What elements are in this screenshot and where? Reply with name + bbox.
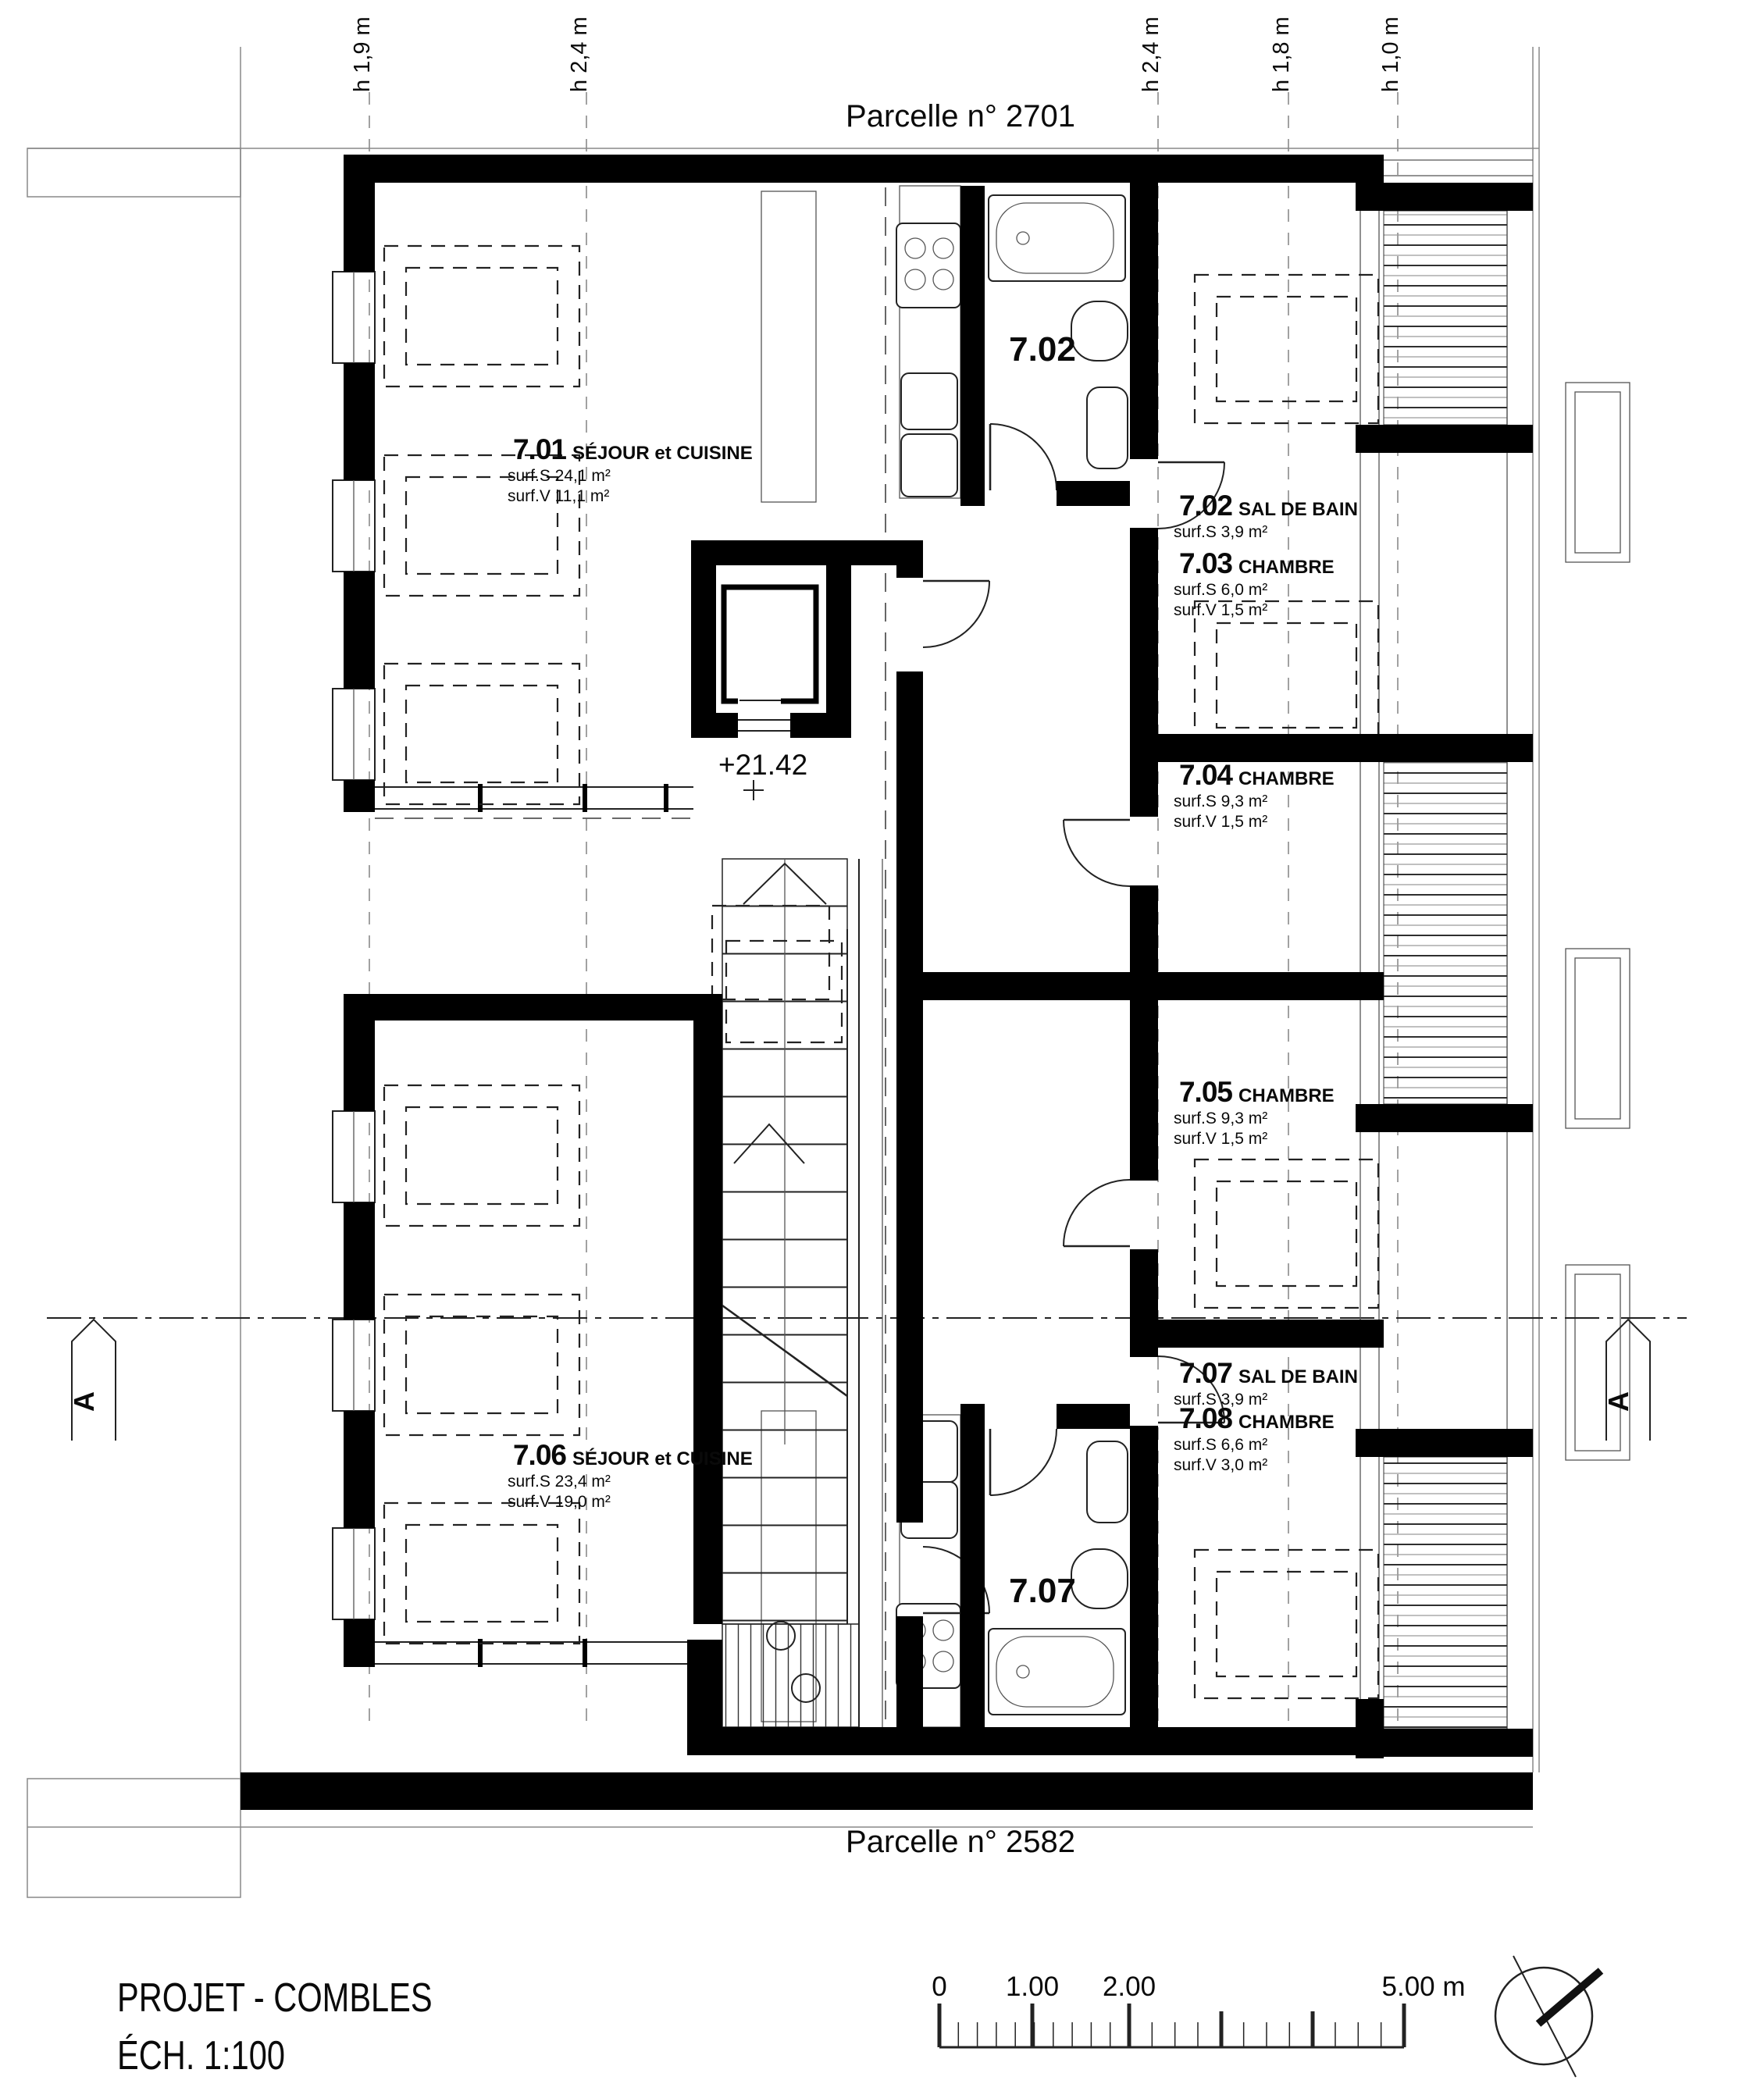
height-label: h 1,9 m <box>350 16 375 92</box>
elevator <box>724 587 816 731</box>
washbasin <box>1087 1441 1128 1523</box>
room-label-number: 7.06 <box>513 1439 566 1471</box>
window-band-top <box>375 784 693 818</box>
dormer-outlines <box>1566 383 1630 1460</box>
toilet <box>1071 1549 1128 1608</box>
room-label-surface: surf.S 9,3 m² <box>1174 1110 1267 1127</box>
elevator-car <box>724 587 816 701</box>
kitchen-sink <box>901 434 957 497</box>
section-marker-left: A <box>68 1320 116 1441</box>
room-label-name: CHAMBRE <box>1238 1412 1335 1433</box>
scale-bar: 0 1.00 2.00 5.00 m <box>932 1972 1465 2047</box>
room-label-surface: surf.V 11,1 m² <box>508 487 609 505</box>
room-label-name: SAL DE BAIN <box>1238 1366 1358 1387</box>
height-label: h 1,8 m <box>1269 16 1294 92</box>
room-label-number: 7.01 <box>513 433 566 465</box>
room-label-surface: surf.S 24,1 m² <box>508 467 611 485</box>
scale-label-0: 0 <box>932 1972 946 2002</box>
room-label-number: 7.08 <box>1179 1402 1232 1434</box>
height-label: h 2,4 m <box>1139 16 1164 92</box>
kitchen-top <box>761 186 960 502</box>
toilet <box>1071 301 1128 361</box>
room-label-name: CHAMBRE <box>1238 768 1335 789</box>
room-label-name: CHAMBRE <box>1238 557 1335 578</box>
room-label-surface: surf.V 1,5 m² <box>1174 601 1267 619</box>
survey-cross <box>743 780 764 800</box>
stair-landing-hatch <box>722 1624 859 1727</box>
parcel-label-bottom: Parcelle n° 2582 <box>846 1825 1075 1859</box>
room-label-surface: surf.V 1,5 m² <box>1174 813 1267 831</box>
section-letter: A <box>1602 1391 1634 1412</box>
stove <box>896 223 960 308</box>
height-label: h 1,0 m <box>1378 16 1403 92</box>
room-label-number: 7.03 <box>1179 547 1232 579</box>
staircase <box>712 780 882 1727</box>
room-label-name: CHAMBRE <box>1238 1085 1335 1106</box>
room-label-number: 7.04 <box>1179 759 1233 791</box>
drawing-title: PROJET - COMBLES <box>117 1975 433 2021</box>
kitchen-sink <box>901 373 957 429</box>
room-label-number: 7.02 <box>1179 490 1232 522</box>
room-label-name: SAL DE BAIN <box>1238 499 1358 520</box>
section-marker-right: A <box>1602 1320 1650 1441</box>
walls <box>241 155 1533 1810</box>
room-label-name: SÉJOUR et CUISINE <box>572 1448 753 1469</box>
room-label-name: SÉJOUR et CUISINE <box>572 442 753 464</box>
bathroom-tag-top: 7.02 <box>1009 330 1076 369</box>
room-label-number: 7.05 <box>1179 1076 1232 1108</box>
scale-label-1: 1.00 <box>1006 1972 1059 2002</box>
neighbor-building-bottom <box>27 1779 241 1897</box>
floor-plan-drawing: A A 0 1.00 2.00 5.00 m Parcelle n° 2701 … <box>0 0 1764 2098</box>
room-label-surface: surf.S 9,3 m² <box>1174 793 1267 810</box>
parcel-label-top: Parcelle n° 2701 <box>846 99 1075 134</box>
north-compass <box>1495 1956 1601 2077</box>
bathroom-tag-bottom: 7.07 <box>1009 1572 1076 1610</box>
height-label: h 2,4 m <box>567 16 592 92</box>
room-label-number: 7.07 <box>1179 1357 1232 1389</box>
washbasin <box>1087 387 1128 468</box>
scale-label-5m: 5.00 m <box>1382 1972 1466 2002</box>
room-label-surface: surf.S 6,6 m² <box>1174 1436 1267 1454</box>
neighbor-building-top <box>27 148 241 197</box>
room-label-surface: surf.S 6,0 m² <box>1174 581 1267 599</box>
room-label-surface: surf.S 3,9 m² <box>1174 523 1267 541</box>
room-label-surface: surf.S 23,4 m² <box>508 1473 611 1491</box>
drawing-scale-title: ÉCH. 1:100 <box>117 2032 285 2078</box>
level-annotation: +21.42 <box>718 749 807 781</box>
floor-plan-sheet: A A 0 1.00 2.00 5.00 m Parcelle n° 2701 … <box>0 0 1764 2098</box>
scale-label-2: 2.00 <box>1103 1972 1156 2002</box>
room-label-surface: surf.V 1,5 m² <box>1174 1130 1267 1148</box>
kitchen-island <box>761 191 816 502</box>
section-letter: A <box>68 1391 100 1412</box>
room-label-surface: surf.V 3,0 m² <box>1174 1456 1267 1474</box>
room-label-surface: surf.V 19,0 m² <box>508 1493 611 1511</box>
